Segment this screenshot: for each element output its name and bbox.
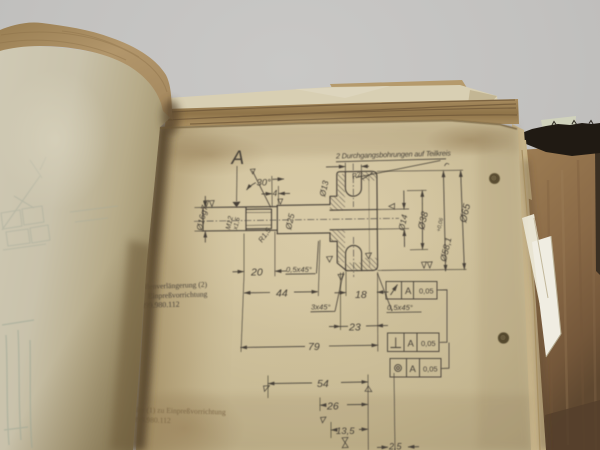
svg-text:A: A	[410, 364, 417, 375]
svg-text:2,5: 2,5	[388, 442, 403, 450]
svg-text:0,05: 0,05	[421, 339, 436, 348]
svg-text:23: 23	[348, 322, 361, 334]
svg-text:A: A	[408, 339, 415, 350]
svg-text:18: 18	[355, 289, 367, 301]
svg-text:54: 54	[317, 378, 329, 390]
svg-text:0,5x45°: 0,5x45°	[286, 265, 312, 274]
svg-text:26: 26	[326, 401, 339, 413]
svg-text:3x45°: 3x45°	[311, 303, 331, 312]
svg-text:0,05: 0,05	[419, 287, 434, 296]
svg-text:79: 79	[308, 341, 320, 353]
svg-text:13,5: 13,5	[336, 426, 355, 437]
svg-text:A: A	[405, 286, 412, 297]
svg-text:A: A	[231, 148, 245, 169]
svg-text:30°: 30°	[257, 178, 272, 189]
svg-text:4: 4	[273, 188, 278, 198]
svg-text:20: 20	[250, 267, 263, 279]
svg-text:0,5x45°: 0,5x45°	[387, 303, 413, 312]
svg-text:44: 44	[276, 288, 288, 300]
svg-text:0,05: 0,05	[423, 365, 438, 374]
